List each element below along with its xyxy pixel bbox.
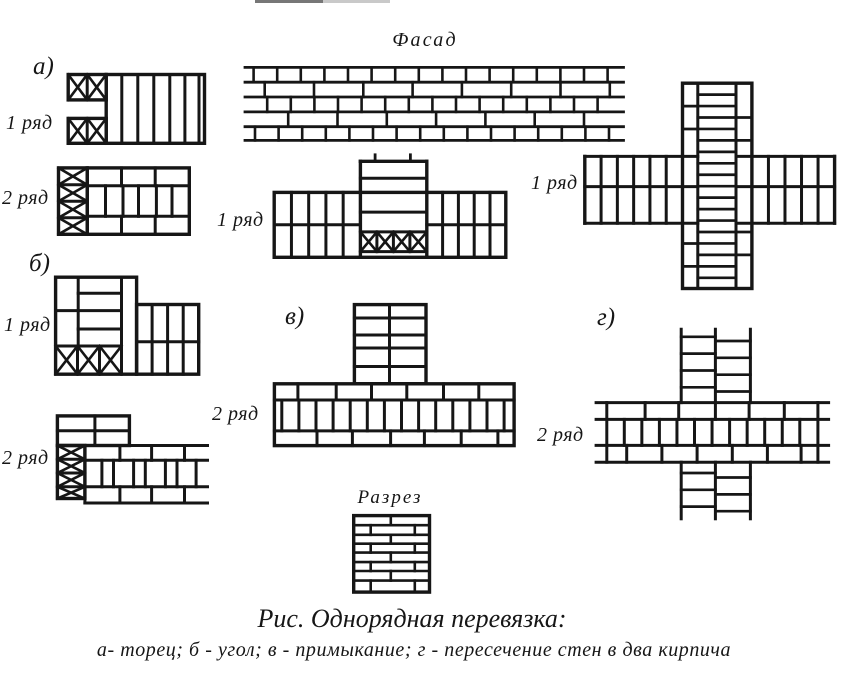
svg-text:в): в)	[285, 303, 304, 330]
svg-text:1 ряд: 1 ряд	[4, 314, 51, 336]
svg-text:Рис. Однорядная перевязка:: Рис. Однорядная перевязка:	[256, 604, 566, 633]
svg-text:1 ряд: 1 ряд	[531, 172, 578, 194]
svg-text:Фасад: Фасад	[392, 29, 458, 51]
svg-text:а- торец; б - угол; в - примык: а- торец; б - угол; в - примыкание; г - …	[97, 639, 731, 661]
svg-text:1 ряд: 1 ряд	[217, 209, 264, 231]
svg-text:2 ряд: 2 ряд	[2, 447, 49, 469]
svg-text:г): г)	[597, 304, 615, 331]
svg-text:Разрез: Разрез	[357, 487, 423, 508]
svg-text:2 ряд: 2 ряд	[2, 187, 49, 209]
svg-text:а): а)	[33, 53, 54, 80]
svg-text:2 ряд: 2 ряд	[537, 424, 584, 446]
svg-text:б): б)	[29, 250, 50, 277]
svg-text:1 ряд: 1 ряд	[6, 112, 53, 134]
svg-text:2 ряд: 2 ряд	[212, 403, 259, 425]
